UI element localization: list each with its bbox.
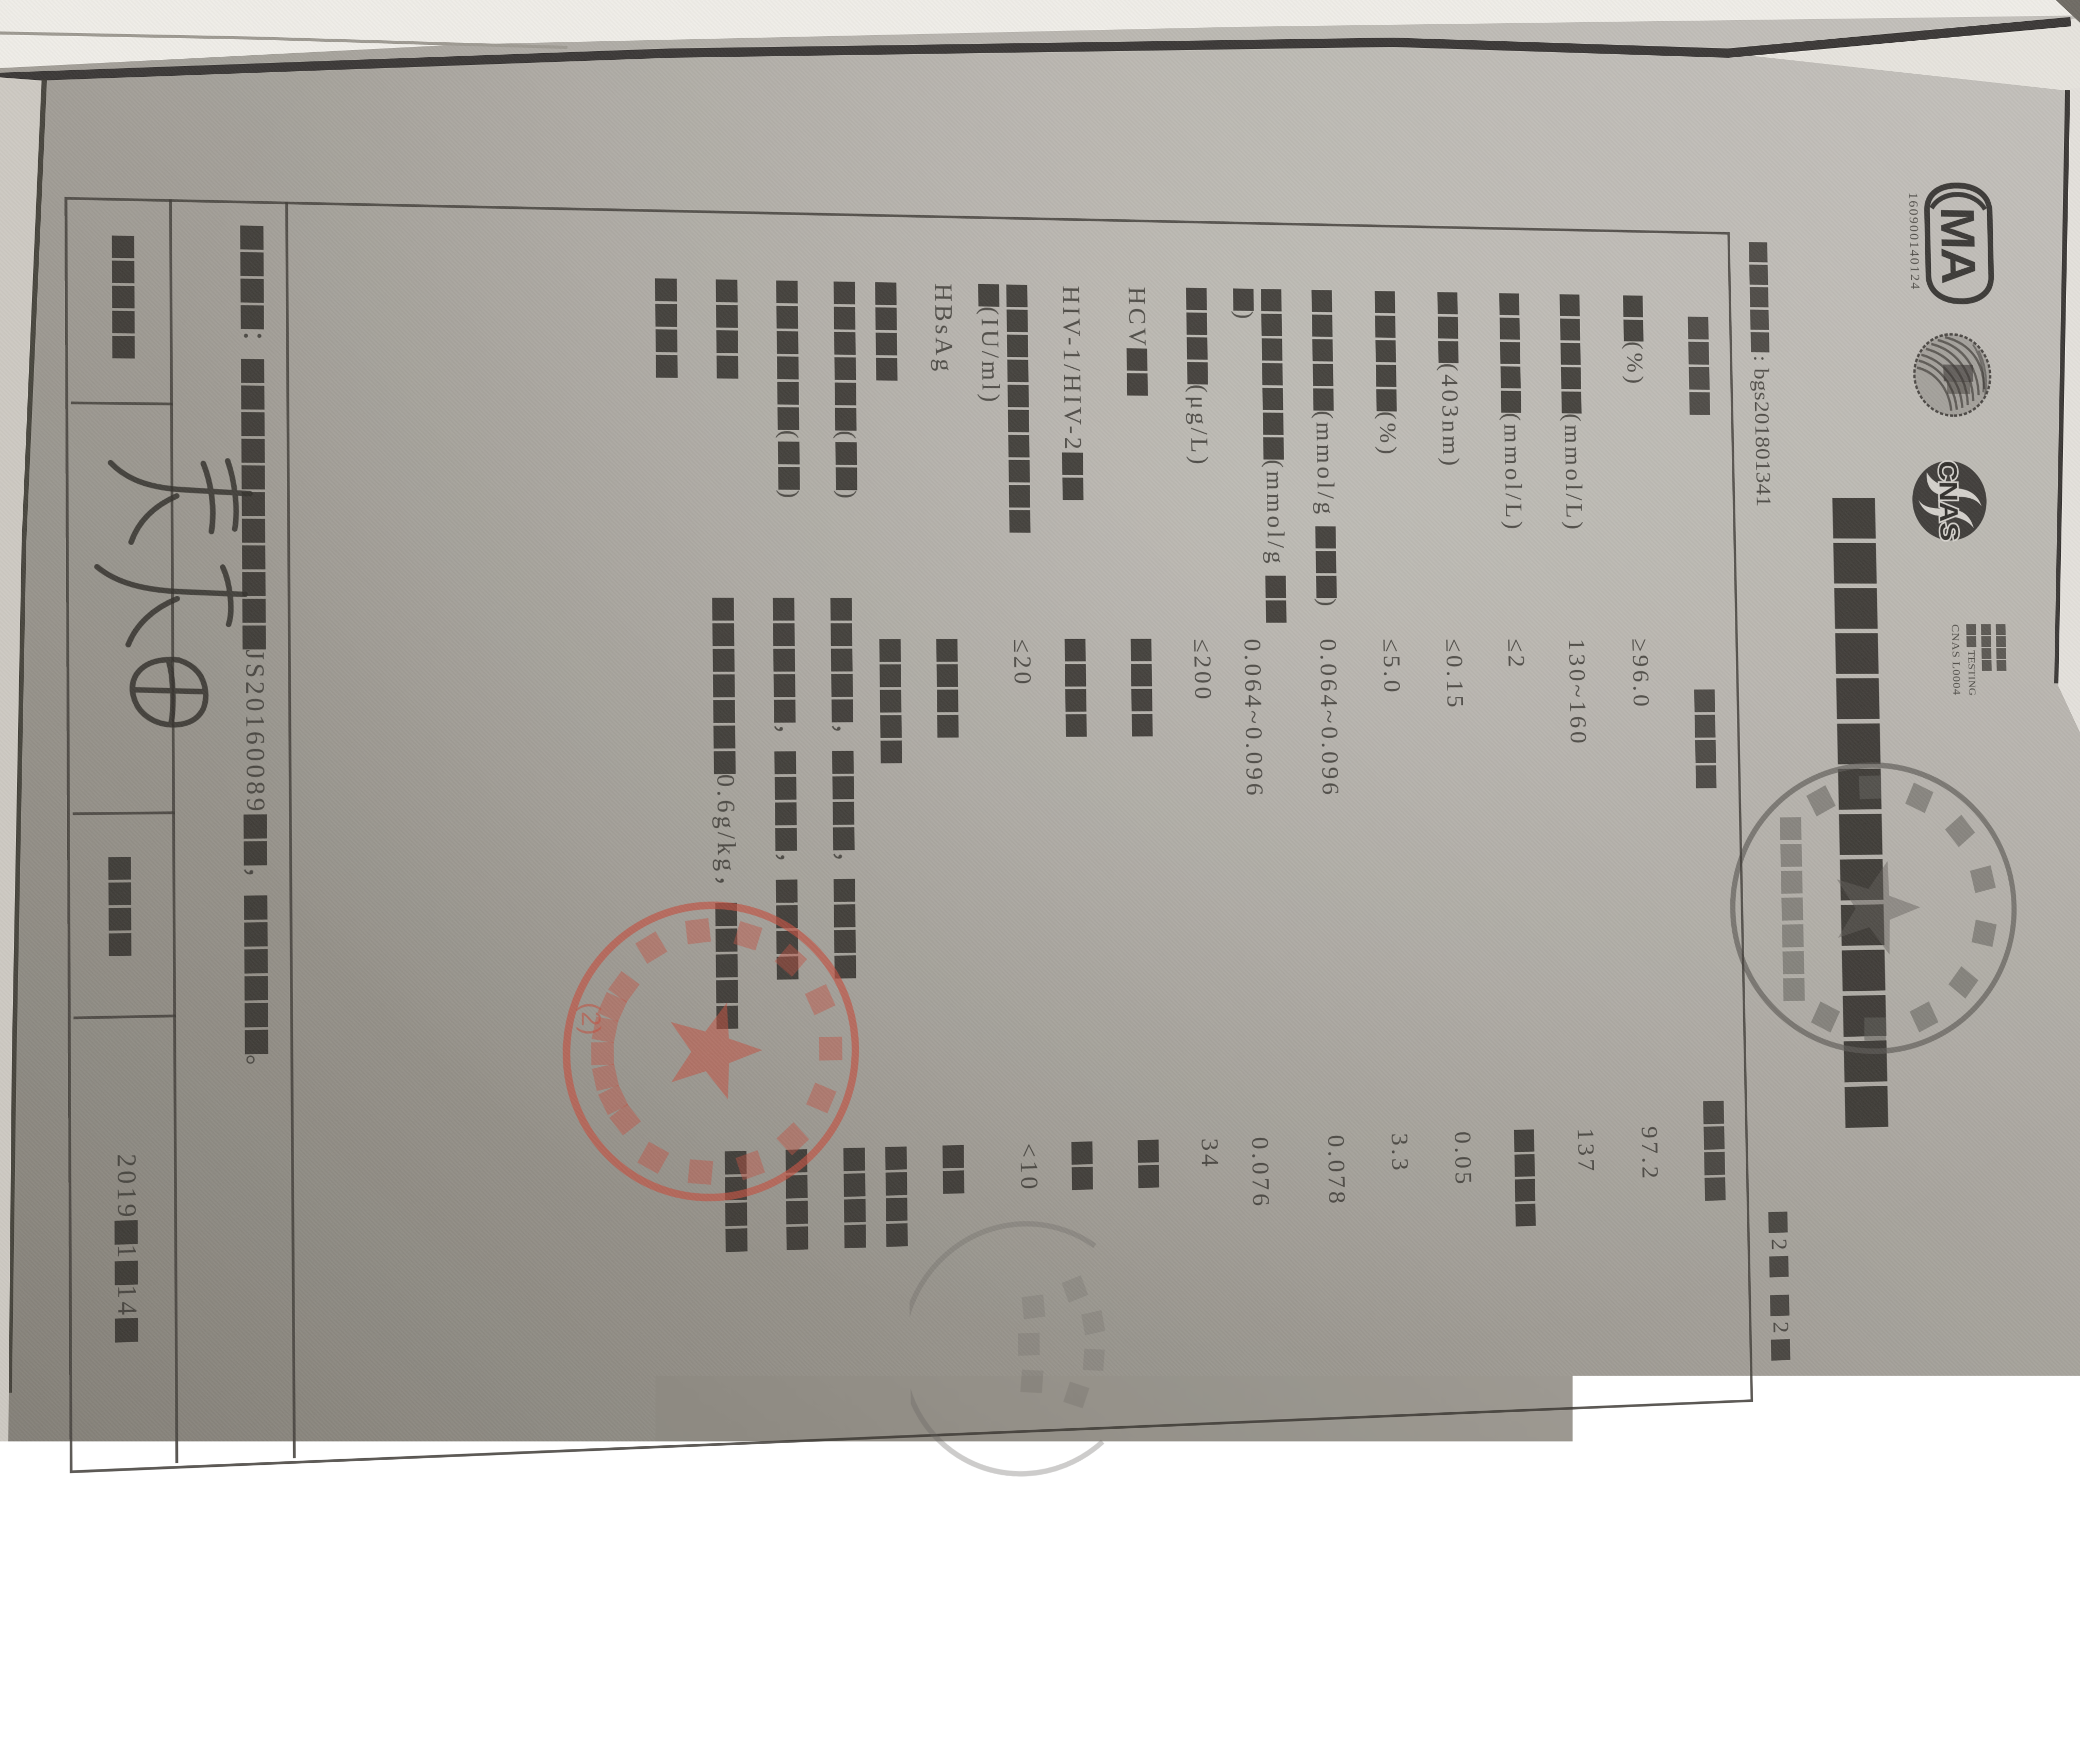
svg-text:(2): (2)	[576, 1002, 606, 1036]
svg-text:CNAS: CNAS	[1933, 461, 1963, 542]
svg-text:MA: MA	[1930, 206, 1986, 284]
